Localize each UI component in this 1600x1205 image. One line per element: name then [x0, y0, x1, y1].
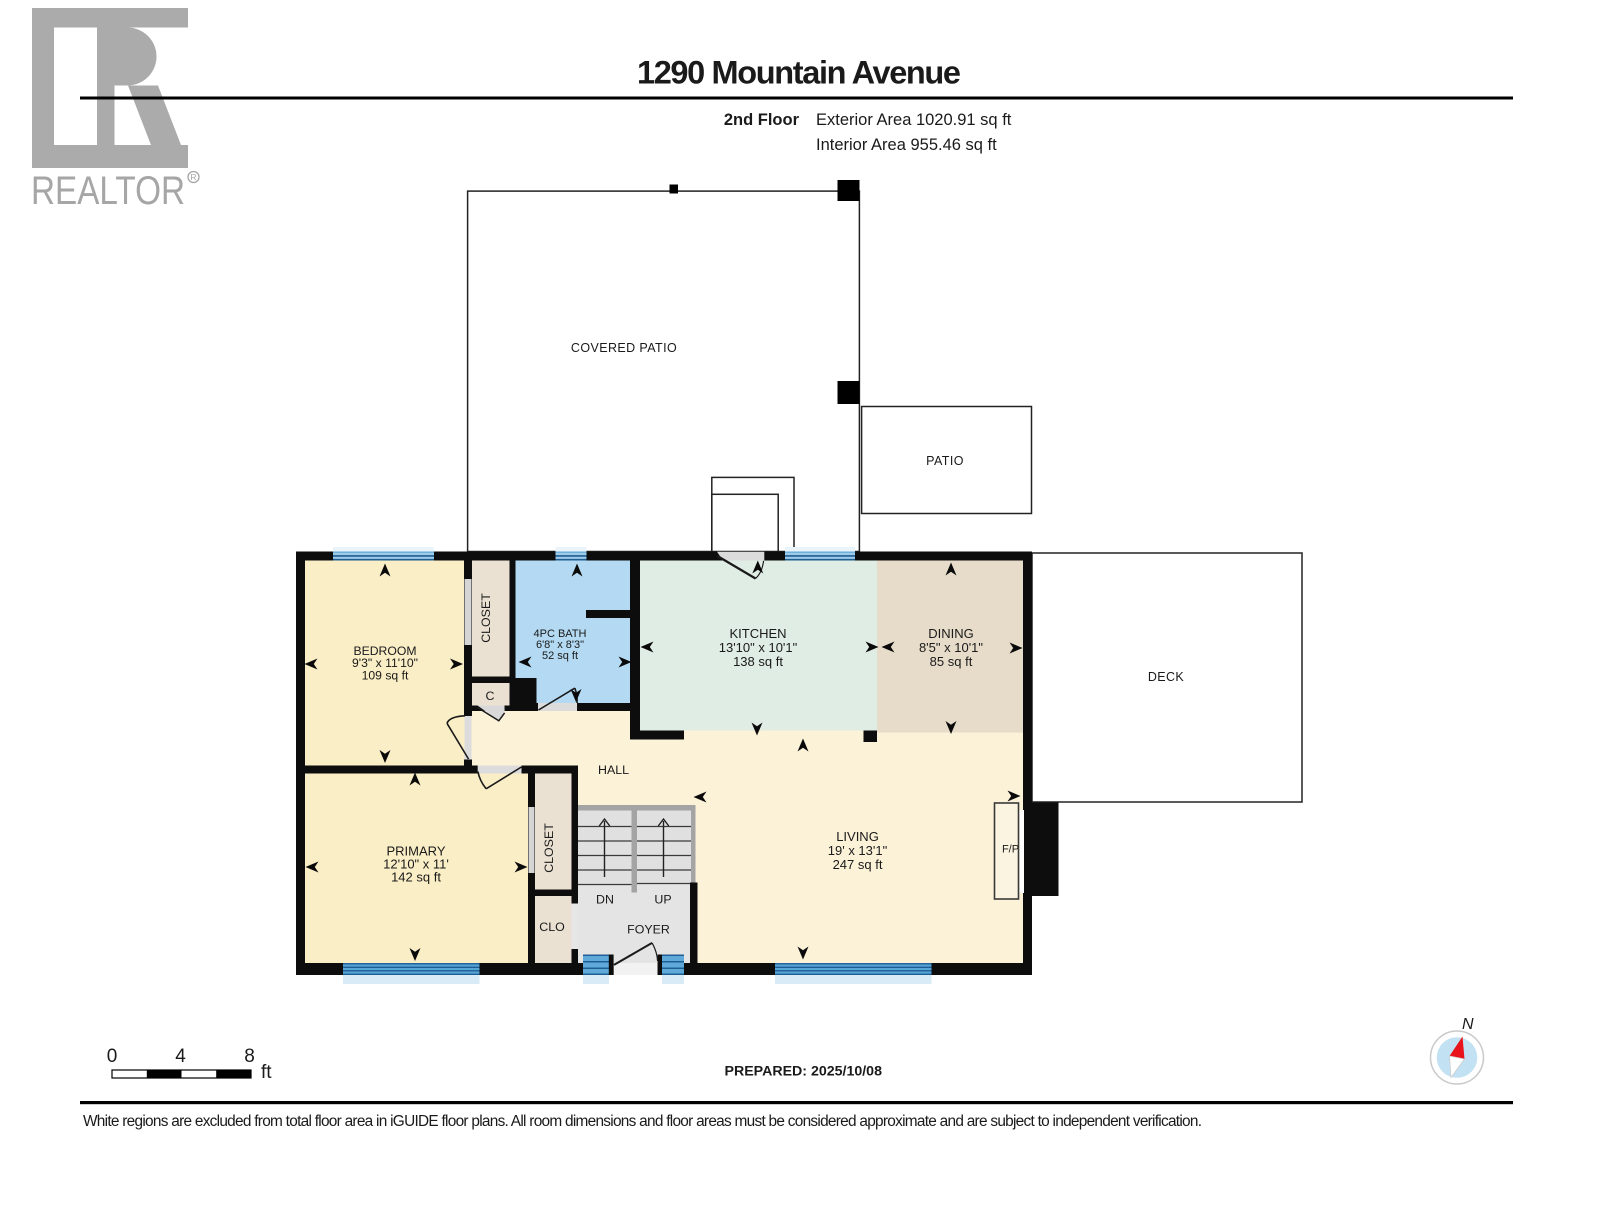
svg-text:R: R	[190, 172, 196, 182]
svg-text:0: 0	[107, 1046, 118, 1067]
svg-text:PREPARED: 2025/10/08: PREPARED: 2025/10/08	[725, 1064, 883, 1080]
svg-text:2nd Floor: 2nd Floor	[724, 111, 800, 129]
svg-text:8: 8	[244, 1046, 255, 1067]
svg-text:FOYER: FOYER	[627, 923, 670, 937]
svg-text:COVERED PATIO: COVERED PATIO	[571, 341, 677, 355]
svg-text:CLOSET: CLOSET	[542, 823, 556, 873]
svg-text:ft: ft	[261, 1062, 272, 1083]
svg-text:REALTOR: REALTOR	[31, 169, 185, 213]
svg-text:N: N	[1462, 1016, 1474, 1033]
svg-text:PRIMARY12'10" x 11'142 sq ft: PRIMARY12'10" x 11'142 sq ft	[383, 844, 449, 885]
svg-text:1290 Mountain Avenue: 1290 Mountain Avenue	[637, 55, 961, 91]
svg-text:CLO: CLO	[539, 920, 565, 934]
svg-text:CLOSET: CLOSET	[479, 593, 493, 643]
svg-text:LIVING19' x 13'1"247 sq ft: LIVING19' x 13'1"247 sq ft	[828, 829, 888, 872]
svg-text:HALL: HALL	[598, 763, 629, 777]
svg-text:Interior Area 955.46 sq ft: Interior Area 955.46 sq ft	[816, 136, 997, 154]
svg-text:C: C	[486, 689, 495, 703]
svg-text:F/P: F/P	[1002, 844, 1019, 856]
svg-text:White regions are excluded fro: White regions are excluded from total fl…	[83, 1113, 1202, 1130]
svg-text:BEDROOM9'3" x 11'10"109 sq ft: BEDROOM9'3" x 11'10"109 sq ft	[352, 644, 418, 682]
svg-text:DN: DN	[596, 893, 614, 907]
svg-text:Exterior Area 1020.91 sq ft: Exterior Area 1020.91 sq ft	[816, 111, 1012, 129]
svg-text:UP: UP	[654, 893, 671, 907]
svg-text:4: 4	[175, 1046, 186, 1067]
svg-text:DECK: DECK	[1148, 670, 1185, 684]
svg-text:PATIO: PATIO	[926, 454, 964, 468]
